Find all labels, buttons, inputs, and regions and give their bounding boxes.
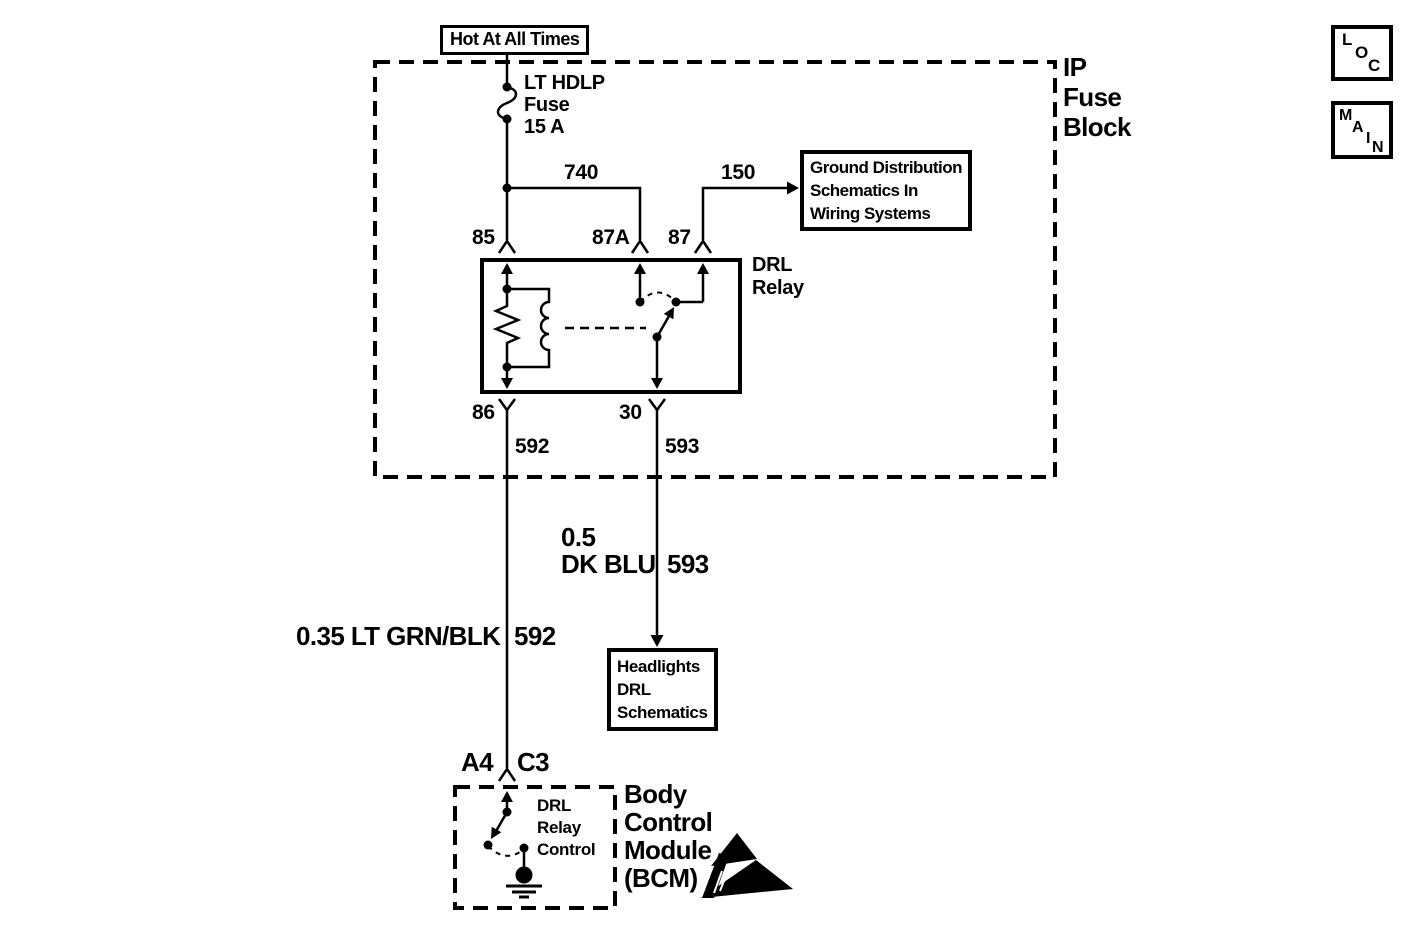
terminal-87-label: 87 xyxy=(668,226,691,250)
bcm-name-label: Body Control Module (BCM) xyxy=(624,780,712,892)
wire-593-circuit: 593 xyxy=(667,549,709,580)
arrow-to-headlights-icon xyxy=(651,635,664,647)
fuse-word: Fuse xyxy=(524,94,605,116)
power-source-label: Hot At All Times xyxy=(450,29,579,50)
fuse-label: LT HDLP Fuse 15 A xyxy=(524,72,605,138)
bcm-connector-c3-label: C3 xyxy=(517,747,549,778)
terminal-30-icon xyxy=(649,399,665,410)
bcm-internals xyxy=(488,797,542,897)
wire-150-label: 150 xyxy=(721,161,755,185)
arrow-to-ground-distribution-icon xyxy=(787,182,799,195)
terminal-86-label: 86 xyxy=(472,401,495,425)
ground-distribution-reference[interactable]: Ground Distribution Schematics In Wiring… xyxy=(800,150,972,231)
wire-593-label: 593 xyxy=(665,435,699,459)
ground-icon xyxy=(506,886,542,897)
wire-593-color: DK BLU xyxy=(561,549,656,580)
schematic-linework xyxy=(0,0,1426,933)
bcm-pin-a4-label: A4 xyxy=(461,747,493,778)
terminal-30-label: 30 xyxy=(619,401,642,425)
headlights-schematics-reference[interactable]: Headlights DRL Schematics xyxy=(607,648,718,731)
loc-nav-button[interactable]: L O C xyxy=(1331,25,1393,81)
drl-relay-box xyxy=(482,260,740,392)
esd-warning-icon xyxy=(701,833,793,898)
relay-coil-icon xyxy=(507,289,549,367)
junction-dots xyxy=(484,83,681,884)
power-source-box: Hot At All Times xyxy=(440,25,589,55)
wiring-diagram: Hot At All Times LT HDLP Fuse 15 A IP Fu… xyxy=(0,0,1426,933)
relay-pin-arrows xyxy=(501,263,709,389)
terminal-a4c3-icon xyxy=(499,769,515,781)
wire-150 xyxy=(703,188,789,240)
drl-relay-label: DRL Relay xyxy=(752,254,804,300)
fuse-name: LT HDLP xyxy=(524,72,605,94)
terminal-87-icon xyxy=(695,241,711,253)
terminal-85-icon xyxy=(499,241,515,253)
terminal-87a-label: 87A xyxy=(592,226,630,250)
wire-592-label: 592 xyxy=(515,435,549,459)
wire-592-gauge-color: 0.35 LT GRN/BLK xyxy=(296,621,500,652)
bcm-switch-throw-arc-icon xyxy=(488,846,524,856)
battery-feed-wire xyxy=(498,52,516,240)
ground-terminal-dot xyxy=(516,867,533,884)
fuse-rating: 15 A xyxy=(524,116,605,138)
drl-relay-control-label: DRL Relay Control xyxy=(537,795,595,861)
ip-fuse-block-label: IP Fuse Block xyxy=(1063,52,1131,142)
terminal-87a-icon xyxy=(632,241,648,253)
terminal-86-icon xyxy=(499,399,515,410)
terminal-85-label: 85 xyxy=(472,226,495,250)
wire-592-circuit: 592 xyxy=(514,621,556,652)
fuse-icon xyxy=(498,87,516,119)
resistor-icon xyxy=(496,289,518,367)
main-nav-button[interactable]: M A I N xyxy=(1331,101,1393,159)
wire-740-label: 740 xyxy=(564,161,598,185)
switch-throw-arc-icon xyxy=(640,293,676,303)
relay-internals xyxy=(496,266,703,383)
